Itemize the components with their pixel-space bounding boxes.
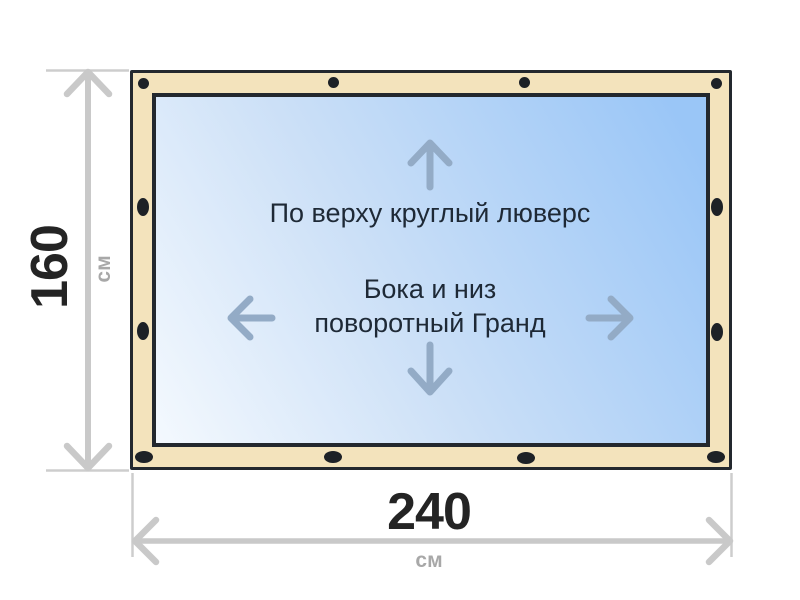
arrowhead-up-icon — [67, 72, 109, 94]
width-value: 240 — [329, 486, 529, 538]
sides-bottom-note-line2: поворотный Гранд — [180, 306, 680, 340]
banner-size-diagram: По верху круглый люверс Бока и низ повор… — [0, 0, 800, 600]
grommet-icon — [138, 78, 149, 89]
grommet-icon — [328, 77, 339, 88]
grommet-icon — [137, 322, 149, 340]
height-value: 160 — [24, 207, 76, 327]
banner-canvas — [152, 93, 710, 447]
grommet-icon — [519, 77, 530, 88]
grommet-icon — [135, 451, 153, 463]
arrowhead-left-icon — [135, 520, 156, 562]
grommet-icon — [324, 451, 342, 463]
height-unit-label: см — [92, 239, 116, 299]
sides-bottom-note: Бока и низ поворотный Гранд — [180, 272, 680, 340]
width-unit-label: см — [379, 549, 479, 573]
sides-bottom-note-line1: Бока и низ — [180, 272, 680, 306]
grommet-icon — [137, 198, 149, 216]
arrowhead-right-icon — [709, 520, 730, 562]
grommet-icon — [517, 452, 535, 464]
arrowhead-down-icon — [67, 446, 109, 468]
grommet-icon — [711, 323, 723, 341]
grommet-icon — [707, 451, 725, 463]
grommet-icon — [711, 78, 722, 89]
top-edge-note: По верху круглый люверс — [180, 196, 680, 230]
grommet-icon — [711, 198, 723, 216]
